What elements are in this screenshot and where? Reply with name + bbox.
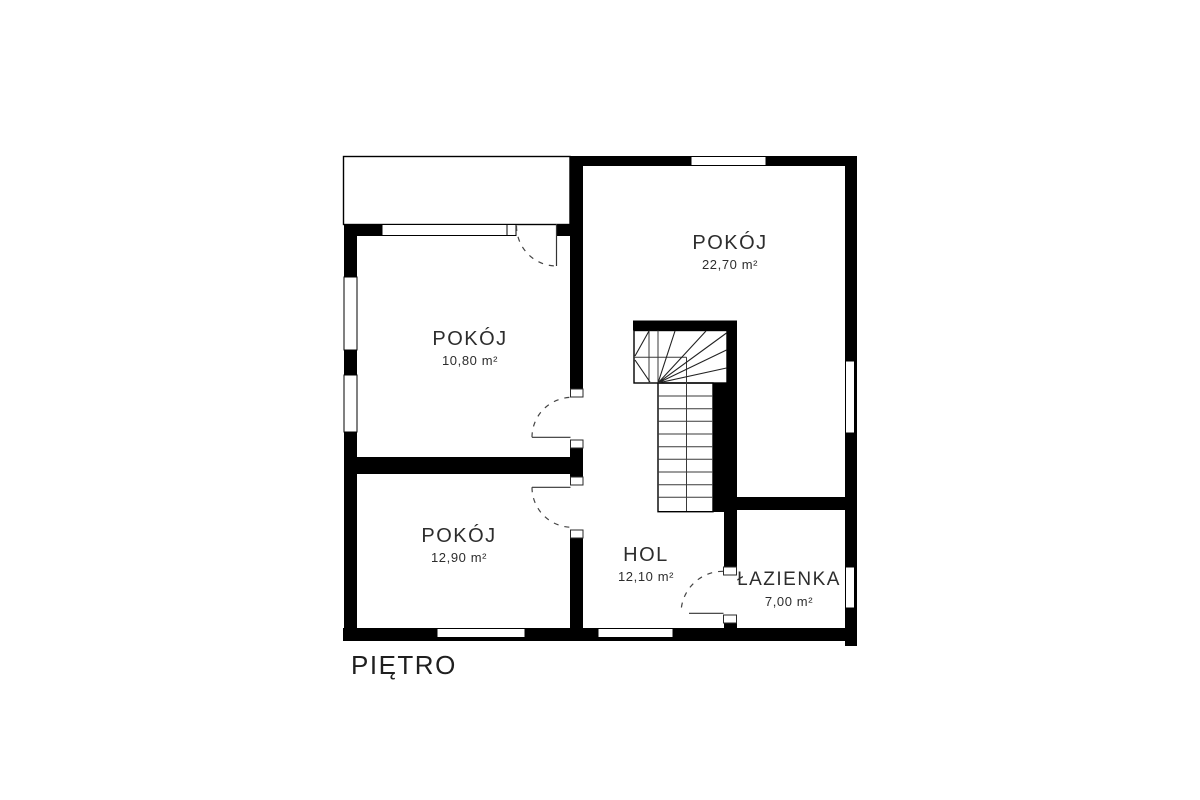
window-bottom-2 [598, 629, 673, 638]
room-area: 7,00 m² [737, 594, 841, 609]
door-bath-swing [681, 571, 723, 613]
door-jambs [571, 389, 737, 623]
door-room1290-swing [532, 487, 572, 527]
jamb-door1-top [571, 389, 584, 397]
wall-room-top-stub [557, 224, 570, 236]
jamb-door1-bottom [571, 440, 584, 448]
wall-stair-right-lower [713, 383, 737, 512]
floor-plan-page: POKÓJ 22,70 m² POKÓJ 10,80 m² POKÓJ 12,9… [0, 0, 1200, 800]
window-room-top [382, 225, 507, 236]
wall-divider [357, 457, 572, 474]
room-name: POKÓJ [432, 327, 507, 351]
wall-middle-lower [570, 538, 583, 628]
jamb-bath-top [724, 567, 737, 575]
windows [344, 157, 855, 638]
stair-treads [634, 331, 713, 512]
door-balcony-swing [517, 226, 557, 266]
jamb-door2-bottom [571, 530, 584, 538]
room-name: POKÓJ [421, 524, 496, 548]
wall-bath-top [737, 497, 845, 510]
window-top [691, 157, 766, 166]
window-left-2 [344, 375, 357, 432]
room-area: 22,70 m² [692, 257, 767, 272]
window-left-1 [344, 277, 357, 350]
staircase [634, 331, 727, 512]
room-name: HOL [618, 543, 674, 567]
stair-flight-box [658, 383, 713, 512]
window-bottom-1 [437, 629, 525, 638]
floor-title: PIĘTRO [351, 650, 457, 681]
balcony-rect [344, 157, 571, 225]
balcony-outline [344, 157, 571, 225]
room-name: ŁAZIENKA [737, 568, 841, 592]
wall-stair-top [633, 321, 737, 331]
jamb-bath-bottom [724, 615, 737, 623]
jamb-door2-top [571, 477, 584, 485]
room-area: 12,90 m² [421, 550, 496, 565]
wall-bath-left-upper [724, 510, 737, 567]
room-name: POKÓJ [692, 231, 767, 255]
wall-room-top-left [344, 224, 382, 236]
wall-stair-right-upper [727, 330, 737, 383]
room-label-lazienka: ŁAZIENKA 7,00 m² [737, 568, 841, 609]
room-label-pokoj-top-right: POKÓJ 22,70 m² [692, 231, 767, 272]
door-room1080-swing [532, 397, 572, 437]
window-right-2 [846, 567, 855, 608]
floor-plan-drawing [0, 0, 1200, 800]
room-label-pokoj-top-left: POKÓJ 10,80 m² [432, 327, 507, 368]
window-room-top-jamb [507, 225, 516, 236]
wall-middle-upper [570, 156, 583, 389]
window-right-1 [846, 361, 855, 433]
room-area: 10,80 m² [432, 353, 507, 368]
room-label-hol: HOL 12,10 m² [618, 543, 674, 584]
room-label-pokoj-bottom: POKÓJ 12,90 m² [421, 524, 496, 565]
wall-bath-left-lower [724, 623, 737, 641]
room-area: 12,10 m² [618, 569, 674, 584]
